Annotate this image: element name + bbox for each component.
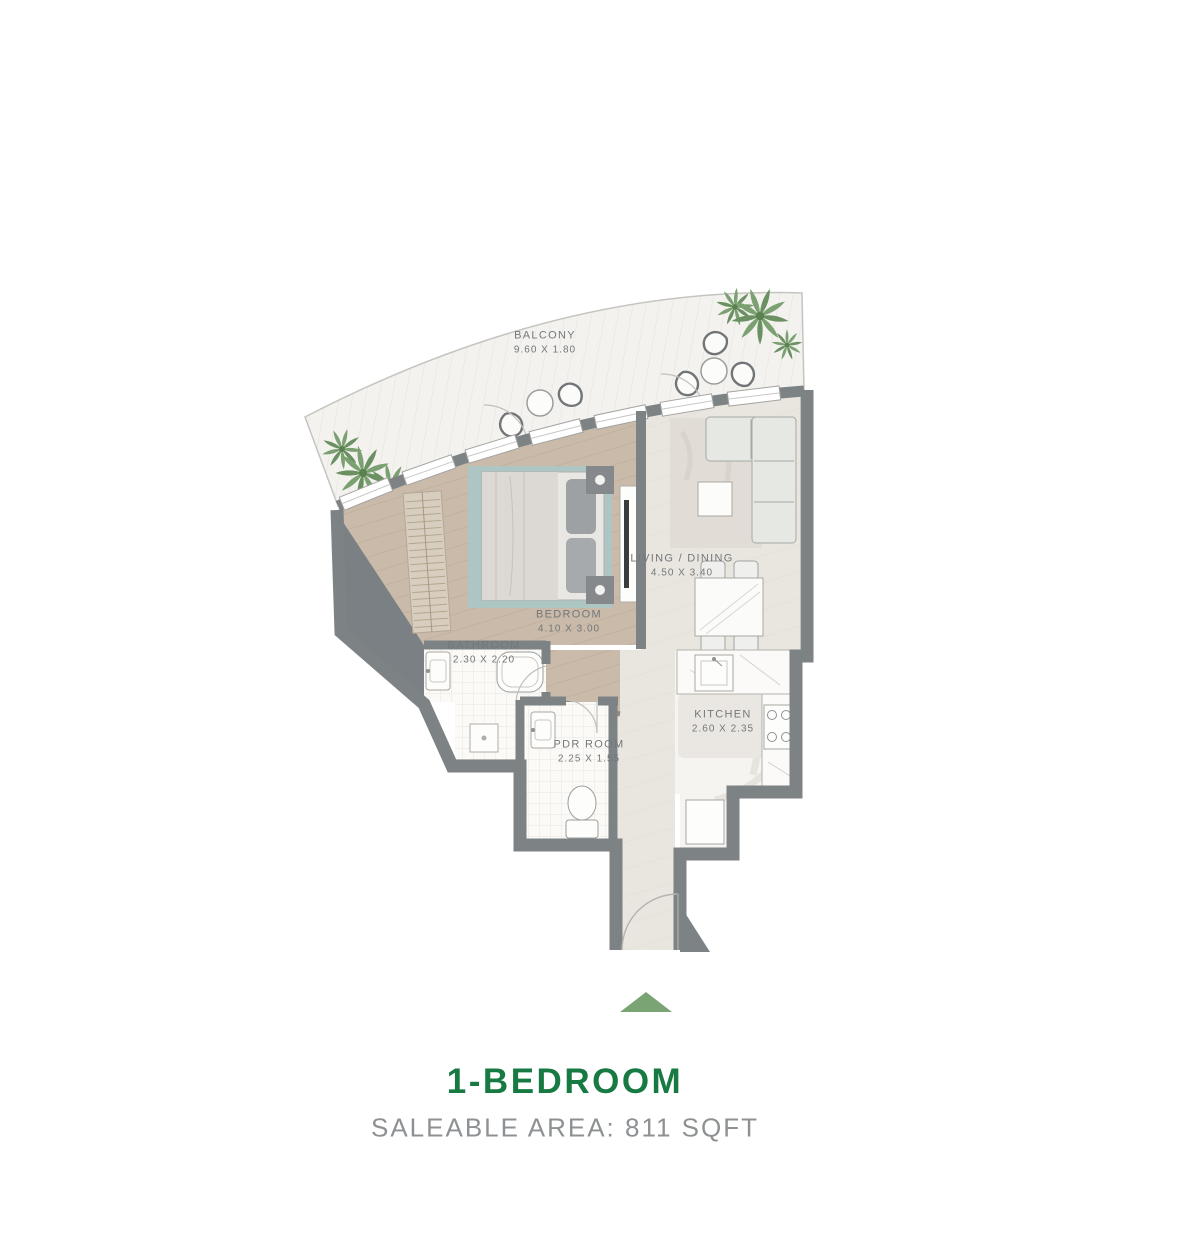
toilet-icon [566, 786, 598, 838]
unit-type-title: 1-BEDROOM [447, 1062, 683, 1102]
hall-corridor-floor [616, 650, 676, 950]
room-label-living-dining: LIVING / DINING 4.50 X 3.40 [630, 552, 733, 579]
room-dims: 2.25 X 1.55 [558, 753, 620, 766]
entrance-marker-icon [620, 992, 672, 1012]
room-dims: 4.10 X 3.00 [538, 623, 600, 636]
coffee-table-icon [698, 482, 732, 516]
shower-icon [470, 724, 498, 752]
tv-unit-icon [620, 486, 638, 602]
room-label-kitchen: KITCHEN 2.60 X 2.35 [692, 708, 754, 735]
balcony-table-icon [701, 358, 727, 384]
sink-icon [426, 652, 450, 690]
room-label-balcony: BALCONY 9.60 X 1.80 [514, 329, 576, 356]
room-name: BALCONY [514, 329, 576, 343]
sink-icon [531, 712, 555, 748]
closet-icon [686, 800, 724, 844]
room-name: BEDROOM [536, 608, 602, 622]
lamp-icon [595, 475, 605, 485]
room-name: LIVING / DINING [630, 552, 733, 566]
dining-chair-icon [734, 561, 758, 580]
balcony-table-icon [527, 390, 553, 416]
room-dims: 2.30 X 2.20 [453, 654, 515, 667]
room-name: PDR ROOM [554, 738, 625, 752]
room-name: KITCHEN [694, 708, 751, 722]
room-label-pdr-room: PDR ROOM 2.25 X 1.55 [554, 738, 625, 765]
room-name: BATHROOM [447, 639, 520, 653]
room-dims: 9.60 X 1.80 [514, 344, 576, 357]
room-label-bedroom: BEDROOM 4.10 X 3.00 [536, 608, 602, 635]
sink-icon [695, 655, 733, 691]
lamp-icon [595, 585, 605, 595]
room-dims: 4.50 X 3.40 [651, 567, 713, 580]
room-label-bathroom: BATHROOM 2.30 X 2.20 [447, 639, 520, 666]
room-dims: 2.60 X 2.35 [692, 723, 754, 736]
bed-icon [482, 472, 604, 600]
saleable-area: SALEABLE AREA: 811 SQFT [371, 1113, 759, 1144]
floor-plan-page: BALCONY 9.60 X 1.80 LIVING / DINING 4.50… [0, 0, 1200, 1253]
